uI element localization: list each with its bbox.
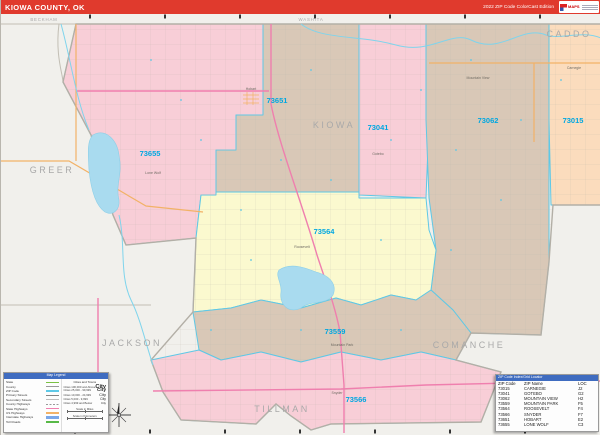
town-label-roosevelt: Roosevelt <box>294 245 310 249</box>
zip-label-73564: 73564 <box>314 227 336 236</box>
marketmaps-logo: MAPS <box>559 1 599 13</box>
town-label-mountain-view: Mountain View <box>467 76 490 80</box>
edition-label: 2022 ZIP Code ColorCast Edition <box>483 5 554 10</box>
compass-rose-icon <box>105 401 133 429</box>
zip-line-swatch <box>46 390 59 391</box>
legend-label: State Highways <box>6 407 28 411</box>
legend-box: Map Legend State County ZIP Code Primary… <box>3 372 109 433</box>
zip-label-73559: 73559 <box>325 327 346 336</box>
zip-code-cell: 73655 <box>498 422 524 427</box>
legend-label: County <box>6 385 16 389</box>
logo-text: MAPS <box>568 5 580 9</box>
header-bar: KIOWA COUNTY, OK 2022 ZIP Code ColorCast… <box>1 0 600 14</box>
legend-label: Toll Roads <box>6 420 20 424</box>
city-class-label: Cities 4,999 and Below <box>64 401 93 405</box>
interstate-highways-swatch <box>46 416 59 418</box>
loc-cell: C3 <box>578 422 596 427</box>
zip-name-cell: LONE WOLF <box>524 422 578 427</box>
city-class-label: Cities 5,000 - 9,999 <box>64 397 88 401</box>
town-label-mountain-park: Mountain Park <box>331 343 354 347</box>
city-sample: City <box>100 397 106 401</box>
legend-label: Interstate Highways <box>6 415 33 419</box>
zip-label-73651: 73651 <box>267 96 288 105</box>
map-canvas: BECKHAM WASHITA CADDO GREER KIOWA JACKSO… <box>1 0 600 435</box>
legend-label: Primary Streets <box>6 393 27 397</box>
state-highways-swatch <box>46 408 59 409</box>
town-label-lone-wolf: Lone Wolf <box>145 171 161 175</box>
zip-label-73041: 73041 <box>368 123 389 132</box>
zip-label-73062: 73062 <box>478 116 499 125</box>
city-class-label: Cities 25,000 - 99,999 <box>64 388 91 392</box>
secondary-streets-swatch <box>46 399 59 400</box>
county-label-greer: GREER <box>30 165 75 175</box>
scale-miles-bar <box>67 410 103 413</box>
zip-label-73566: 73566 <box>346 395 367 404</box>
primary-streets-swatch <box>46 395 59 396</box>
county-label-kiowa: KIOWA <box>313 120 355 130</box>
logo-checker-icon <box>560 4 567 11</box>
legend-label: ZIP Code <box>6 389 19 393</box>
county-label-comanche: COMANCHE <box>433 340 506 350</box>
town-label-carnegie: Carnegie <box>567 66 581 70</box>
state-line-swatch <box>46 382 59 383</box>
zip-label-73015: 73015 <box>563 116 584 125</box>
legend-cities-column: Cities and Towns Cities 100,000 and Abov… <box>61 379 108 432</box>
town-label-hobart: Hobart <box>246 87 257 91</box>
county-label-washita: WASHITA <box>298 17 323 22</box>
page-title: KIOWA COUNTY, OK <box>5 3 85 12</box>
zip-index-table: ZIP Code Index/Grid Locator ZIP Code ZIP… <box>495 374 599 432</box>
county-label-caddo: CADDO <box>546 29 591 39</box>
table-row: 73655LONE WOLFC3 <box>496 422 598 427</box>
zip-label-73655: 73655 <box>140 149 161 158</box>
county-label-tillman: TILLMAN <box>254 404 310 414</box>
legend-label: Secondary Streets <box>6 398 31 402</box>
legend-label: County Highways <box>6 402 30 406</box>
us-highways-swatch <box>46 412 59 414</box>
logo-fine-print <box>582 5 598 10</box>
county-label-beckham: BECKHAM <box>30 17 57 22</box>
legend-label: State <box>6 380 13 384</box>
county-highways-swatch <box>46 404 59 405</box>
legend-line-items: State County ZIP Code Primary Streets Se… <box>4 379 61 432</box>
legend-label: US Highways <box>6 411 25 415</box>
city-sample: City <box>101 401 106 405</box>
toll-roads-swatch <box>46 421 59 423</box>
county-label-jackson: JACKSON <box>102 338 162 348</box>
county-line-swatch <box>46 386 59 387</box>
town-label-snyder: Snyder <box>331 391 343 395</box>
scale-km-bar <box>67 417 103 420</box>
town-label-gotebo: Gotebo <box>372 152 384 156</box>
